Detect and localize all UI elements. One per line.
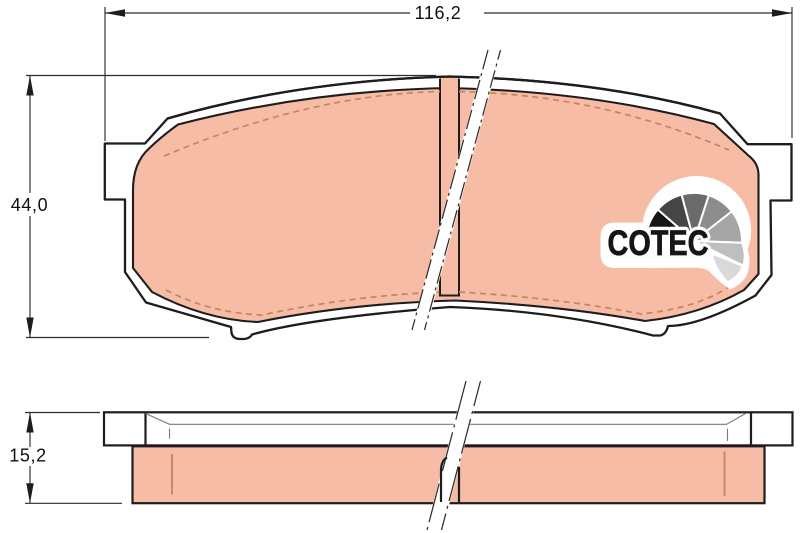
svg-text:15,2: 15,2: [9, 446, 46, 466]
svg-text:116,2: 116,2: [415, 3, 462, 23]
svg-text:COTEC: COTEC: [608, 224, 709, 263]
svg-text:44,0: 44,0: [11, 195, 48, 215]
